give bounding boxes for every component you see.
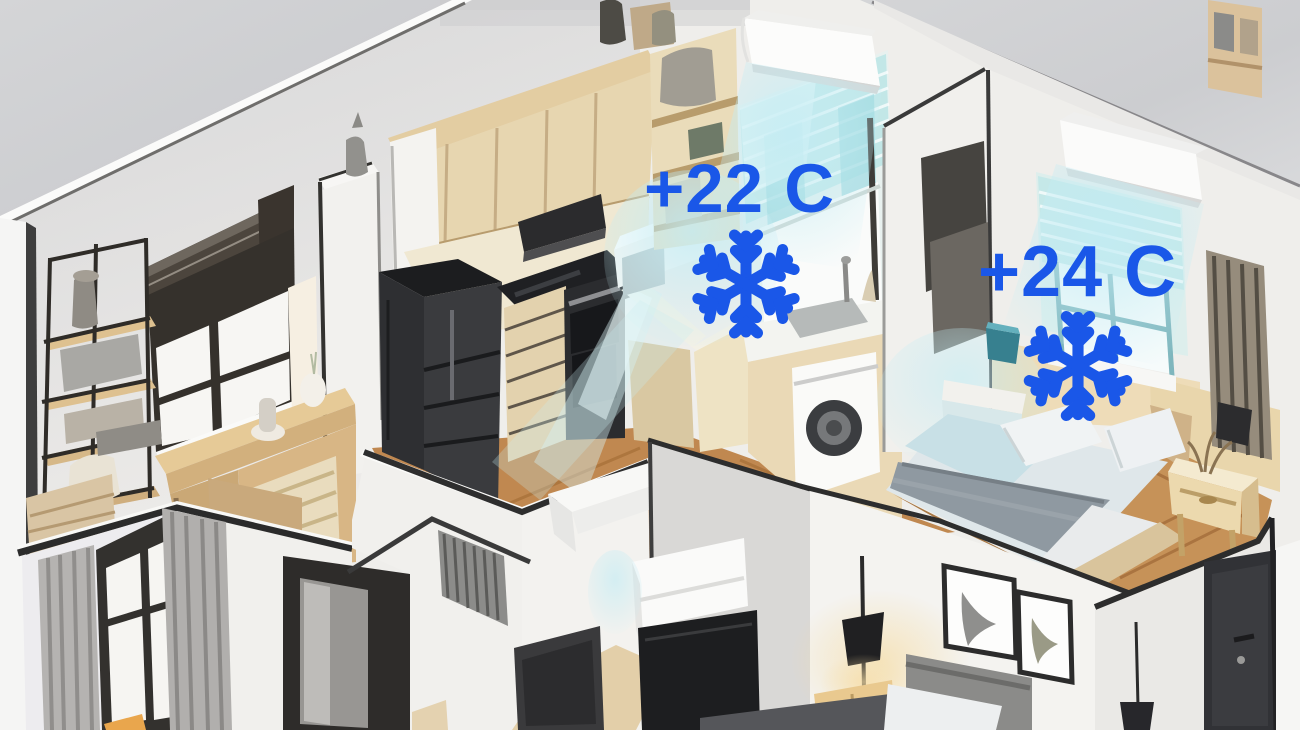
svg-text:+22 C: +22 C [644,150,835,227]
svg-text:+24 C: +24 C [978,232,1177,312]
